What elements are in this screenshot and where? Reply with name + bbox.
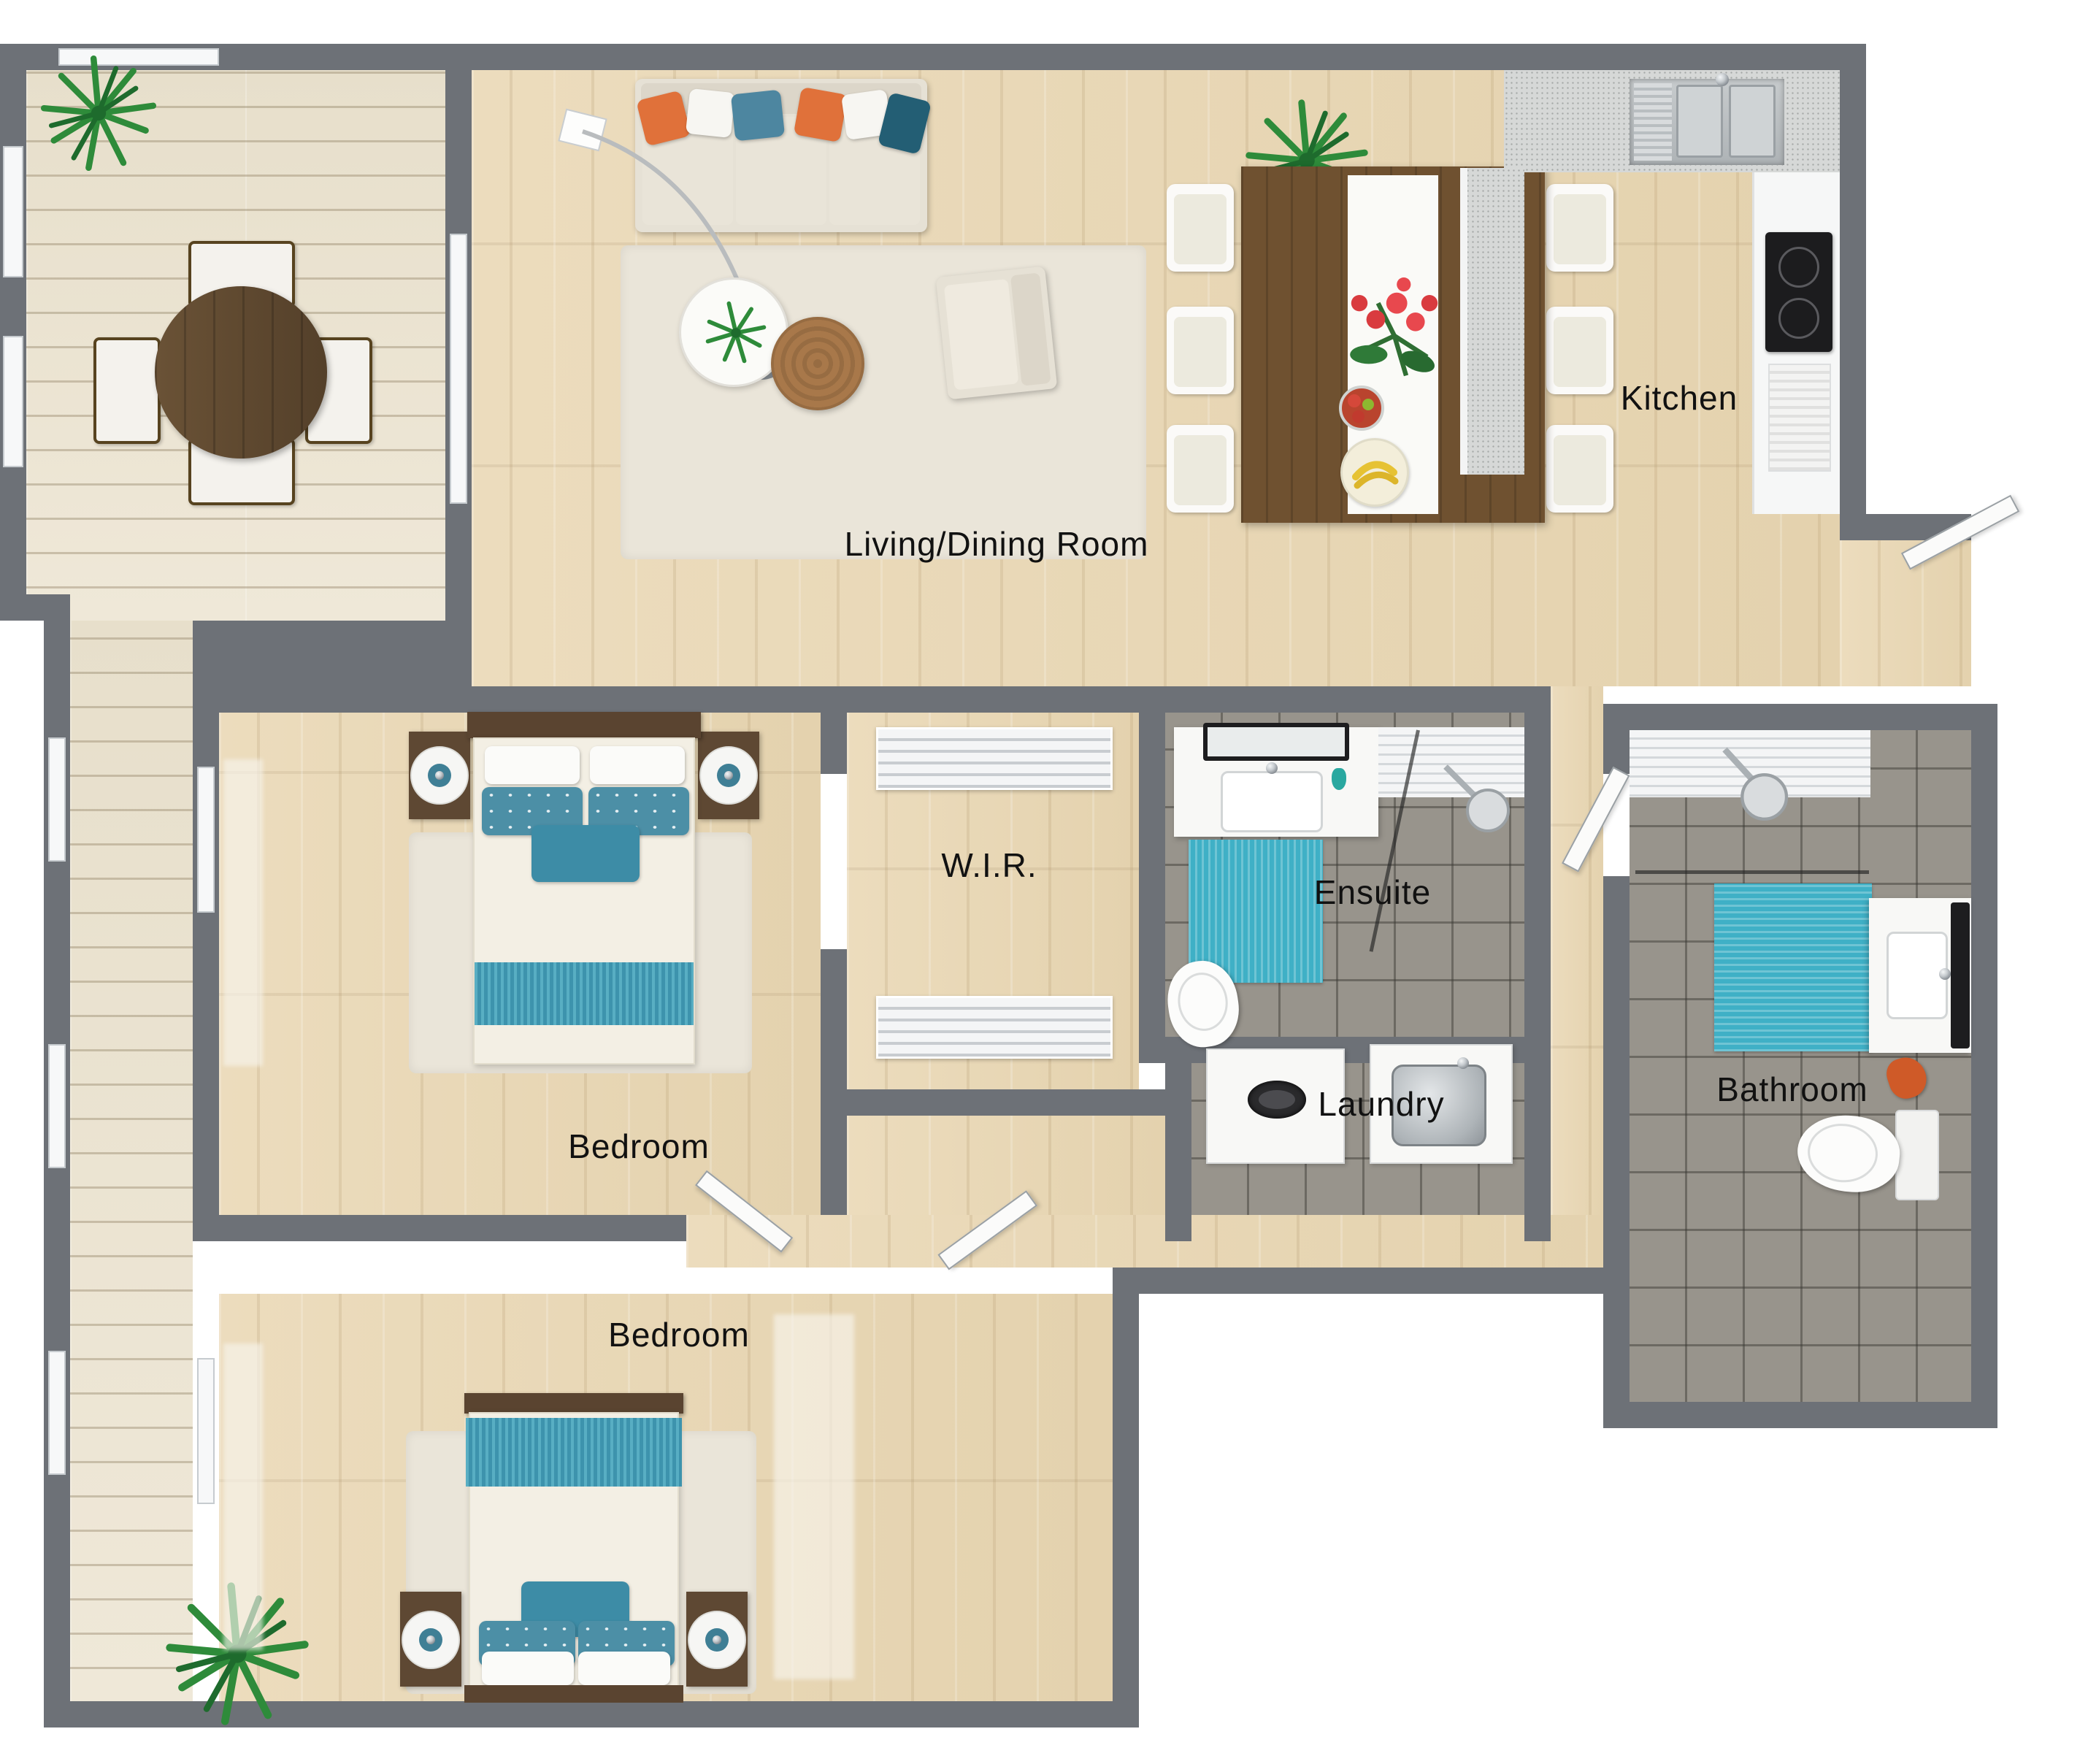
faucet-icon	[1266, 762, 1278, 774]
cooktop-icon	[1765, 232, 1832, 352]
oven-hood	[1768, 364, 1831, 472]
dining-chair	[1167, 184, 1234, 272]
faucet-icon	[1716, 73, 1729, 86]
wall-bathroom-left-a	[1603, 730, 1630, 774]
room-label-kitchen: Kitchen	[1621, 378, 1738, 418]
window-balcony-left-1	[3, 146, 23, 277]
outdoor-table	[155, 286, 327, 459]
bedroom1-sheer-curtain	[223, 759, 263, 1066]
outdoor-chair-west	[93, 337, 161, 444]
bed-pillow-white	[482, 1652, 574, 1685]
dining-chair	[1546, 307, 1613, 394]
room-label-ensuite: Ensuite	[1314, 873, 1431, 912]
coffee-table-wood	[771, 317, 864, 410]
plant-icon	[37, 51, 161, 175]
soap-bottle-icon	[1332, 768, 1346, 790]
wall-fill-block	[193, 621, 472, 686]
room-label-bedroom1: Bedroom	[568, 1127, 710, 1166]
armchair	[936, 266, 1058, 400]
toilet-cistern	[1895, 1110, 1939, 1200]
ensuite-vanity	[1174, 727, 1378, 837]
hallway-floor	[686, 1215, 1624, 1268]
window-deck-1	[48, 737, 66, 862]
vanity-mirror	[1951, 902, 1970, 1048]
wall-top	[0, 44, 1866, 70]
wardrobe-shelves-top	[876, 727, 1113, 790]
wall-kitchen-right	[1840, 70, 1866, 540]
dining-chair	[1167, 307, 1234, 394]
window-bedroom2	[197, 1358, 215, 1504]
room-label-bathroom: Bathroom	[1716, 1070, 1868, 1109]
bed-pillow-accent-teal	[531, 825, 640, 882]
bathroom-corridor-floor	[1551, 686, 1603, 1268]
banana-plate-icon	[1340, 438, 1409, 507]
wall-bedroom1-wir-a	[821, 713, 847, 774]
bed-headboard	[467, 712, 701, 738]
bed	[469, 1412, 679, 1688]
wardrobe-shelves-bottom	[876, 996, 1113, 1059]
room-label-laundry: Laundry	[1318, 1084, 1444, 1124]
wall-laundry-right	[1524, 1063, 1551, 1241]
window-deck-3	[48, 1351, 66, 1475]
peninsula-cabinet-edge	[1460, 168, 1467, 475]
room-label-living: Living/Dining Room	[845, 524, 1149, 564]
wall-hall-bottom	[1139, 1268, 1630, 1294]
dining-chair	[1546, 184, 1613, 272]
faucet-icon	[1939, 968, 1951, 980]
plant-icon	[701, 298, 771, 368]
bed-foot-frame	[464, 1393, 683, 1414]
table-lamp-icon	[699, 746, 758, 805]
fruit-bowl-icon	[1339, 386, 1384, 431]
dining-chair	[1167, 425, 1234, 513]
flower-centerpiece-icon	[1336, 277, 1453, 394]
bathroom-vanity	[1869, 898, 1971, 1053]
bathroom-bath-mat	[1714, 883, 1872, 1051]
wall-bedroom2-right	[1113, 1268, 1139, 1727]
bedroom2-sheer-curtain	[223, 1343, 263, 1650]
faucet-icon	[1457, 1057, 1469, 1069]
kitchen-peninsula-counter	[1460, 168, 1524, 475]
sliding-door-balcony	[450, 234, 467, 504]
bed	[473, 737, 695, 1065]
wall-bathroom-top	[1603, 704, 1997, 730]
shower-head-icon	[1701, 745, 1796, 840]
bed-runner-teal	[466, 1418, 682, 1487]
room-label-wir: W.I.R.	[941, 845, 1037, 885]
wall-bathroom-left-b	[1603, 876, 1630, 1402]
wall-ensuite-right	[1524, 713, 1551, 1037]
bed-runner-teal	[475, 962, 694, 1025]
sink-icon	[1221, 771, 1323, 832]
table-lamp-icon	[402, 1611, 460, 1669]
wall-bathroom-bottom	[1603, 1402, 1997, 1428]
dining-chair	[1546, 425, 1613, 513]
window-deck-2	[48, 1044, 66, 1168]
wall-living-bottom	[409, 686, 1551, 713]
bed-pillow-white	[590, 746, 685, 784]
wall-bedroom1-bottom	[193, 1215, 686, 1241]
floor-plan: Living/Dining Room Kitchen W.I.R. Ensuit…	[0, 0, 2088, 1764]
shower-glass	[1635, 870, 1869, 874]
bedroom2-sheer-curtain	[774, 1314, 854, 1679]
wall-balcony-jog	[0, 594, 70, 621]
kitchen-sink	[1630, 79, 1784, 165]
wall-laundry-left	[1165, 1063, 1191, 1241]
bed-pillow-white	[578, 1652, 670, 1685]
wall-bedroom1-top	[193, 686, 435, 713]
wall-bedroom1-wir-b	[821, 949, 847, 1215]
wall-wir-ensuite	[1139, 686, 1165, 1063]
shower-head-icon	[1431, 759, 1519, 847]
window-balcony-left-2	[3, 336, 23, 467]
bed-pillow-white	[485, 746, 580, 784]
table-lamp-icon	[688, 1611, 746, 1669]
deck-walkway-floor	[70, 621, 193, 1701]
table-lamp-icon	[410, 746, 469, 805]
wall-wir-bottom	[821, 1089, 1165, 1116]
room-label-bedroom2: Bedroom	[608, 1315, 750, 1354]
window-bedroom1	[197, 767, 215, 913]
bed-headboard	[464, 1685, 683, 1703]
wall-bathroom-right	[1971, 730, 1997, 1428]
